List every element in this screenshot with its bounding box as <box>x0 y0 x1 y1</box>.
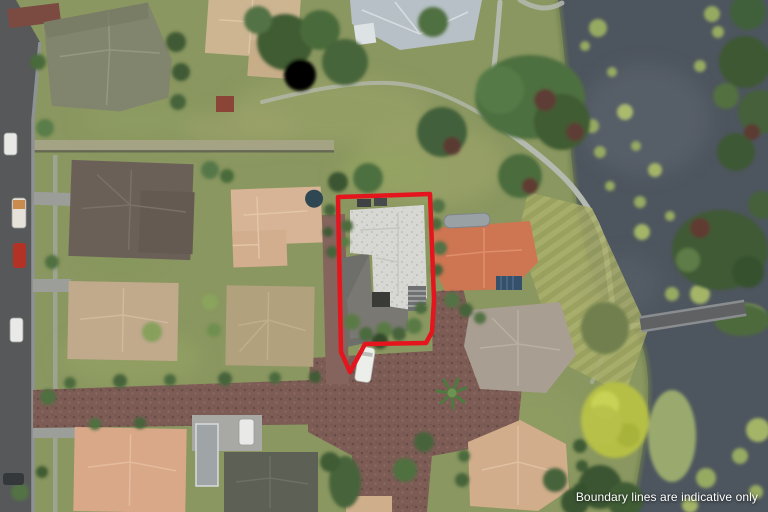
driveway-crossing <box>33 279 71 292</box>
boat-trailer <box>444 213 491 228</box>
garage-shadow <box>372 292 390 307</box>
house-roof-khaki-center <box>225 285 314 367</box>
car-parked <box>239 419 254 445</box>
house-roof-salmon-bottomleft <box>73 427 186 512</box>
footpath-left <box>53 155 58 512</box>
garden-shed <box>196 424 218 486</box>
solar-panels <box>374 198 387 206</box>
van-street <box>12 198 26 228</box>
car-dark <box>3 473 24 485</box>
aerial-scene <box>0 0 768 512</box>
house-roof-dark-bottomleft <box>224 452 318 512</box>
house-roof-olive-topleft <box>43 2 174 114</box>
car-white <box>10 318 23 342</box>
car-white <box>4 133 17 155</box>
red-shed <box>216 96 234 112</box>
solar-panels <box>357 199 371 207</box>
back-lane <box>0 140 334 153</box>
house-roof-terracotta-right <box>431 221 538 291</box>
house-roof-darkbrown-left <box>68 160 195 260</box>
house-roof-tan-left <box>67 281 178 361</box>
car-red <box>13 243 26 268</box>
aerial-photo: Boundary lines are indicative only <box>0 0 768 512</box>
water-sheen <box>580 65 710 175</box>
solar-panels <box>496 276 522 290</box>
